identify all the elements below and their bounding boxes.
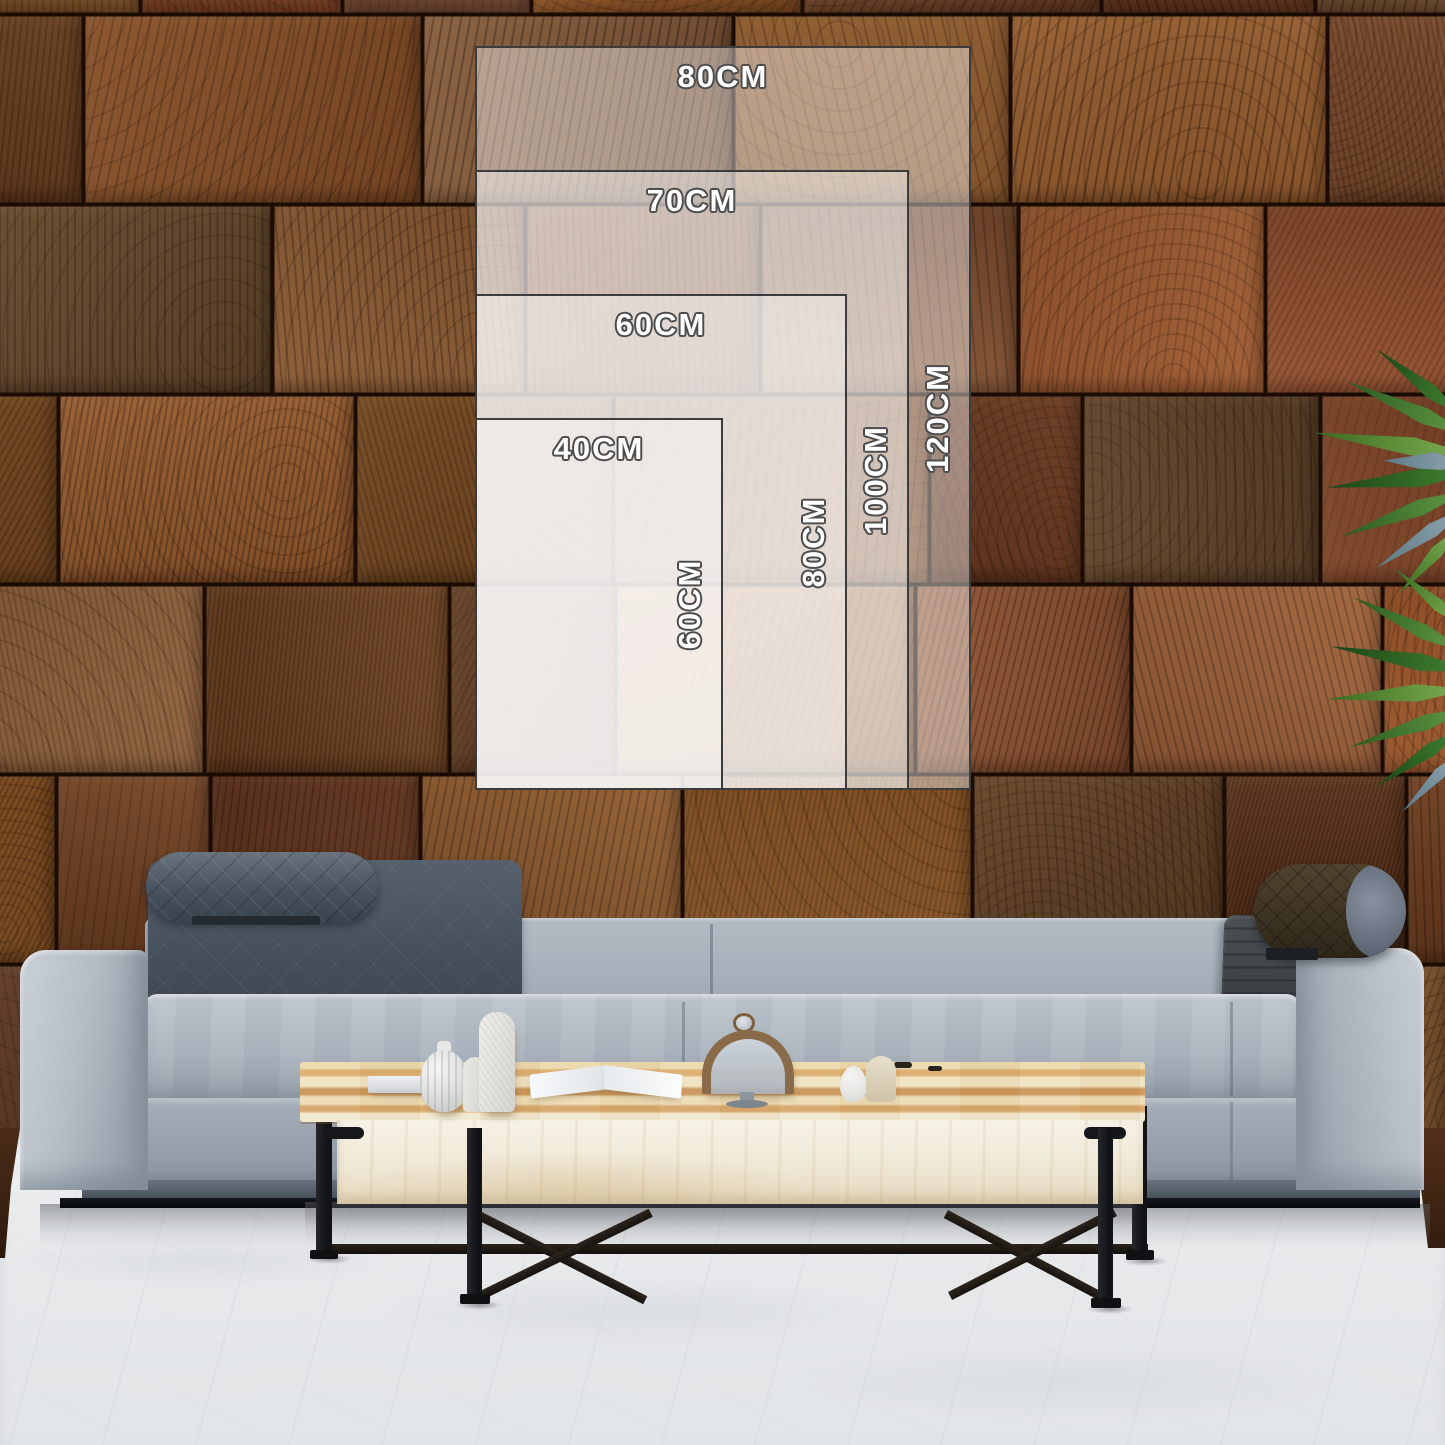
marble-vase-tall — [479, 1012, 515, 1112]
wood-block — [0, 16, 82, 203]
wood-block — [85, 16, 421, 203]
wood-block — [1384, 586, 1445, 773]
table-foot — [310, 1250, 338, 1259]
open-book — [528, 1062, 682, 1100]
headrest-roll-cushion — [146, 852, 378, 922]
sofa-armrest-left — [20, 950, 148, 1190]
table-foot — [1126, 1250, 1154, 1260]
table-cable-port — [894, 1062, 912, 1068]
wood-block — [1317, 0, 1445, 13]
bolster-end-cap — [1346, 864, 1406, 958]
headrest-bracket — [192, 916, 320, 925]
wood-block — [931, 396, 1082, 583]
wood-block — [1103, 0, 1314, 13]
wood-block — [0, 396, 57, 583]
bolster-bracket — [1266, 948, 1318, 960]
bell-cloche-foot — [726, 1100, 768, 1108]
wood-block — [0, 0, 139, 13]
table-front-face — [337, 1120, 1143, 1204]
open-book-left-page — [530, 1065, 607, 1098]
wood-block — [615, 396, 928, 583]
wood-block — [1012, 16, 1326, 203]
wood-block — [735, 16, 1008, 203]
wood-block — [1020, 206, 1264, 393]
leather-bolster-pillow — [1254, 864, 1406, 958]
open-book-right-page — [604, 1065, 683, 1098]
dome-ornament — [866, 1056, 896, 1102]
wood-block — [527, 206, 759, 393]
table-leg-front-left — [467, 1128, 482, 1300]
wood-block — [0, 586, 203, 773]
egg-ornament — [840, 1066, 867, 1102]
wood-block — [142, 0, 341, 13]
wood-block — [617, 586, 914, 773]
living-room-size-guide-scene: 80CM120CM70CM100CM60CM80CM40CM60CM — [0, 0, 1445, 1445]
table-foot — [1091, 1298, 1121, 1308]
table-cable-port — [928, 1066, 942, 1071]
drawer-handle-left — [322, 1127, 364, 1139]
wood-block — [357, 396, 612, 583]
wood-block — [274, 206, 525, 393]
sofa-armrest-right — [1296, 948, 1424, 1190]
wood-block — [0, 776, 55, 963]
wood-block — [344, 0, 530, 13]
wood-block — [451, 586, 614, 773]
wood-block — [206, 586, 448, 773]
wood-block — [1133, 586, 1382, 773]
gourd-vase — [420, 1050, 468, 1112]
wood-block — [804, 0, 1100, 13]
seat-seam — [1230, 1002, 1233, 1096]
table-floor-shadow — [305, 1202, 1147, 1246]
table-foot — [460, 1294, 490, 1304]
wood-block — [1084, 396, 1319, 583]
wood-block — [762, 206, 1017, 393]
wood-block — [1322, 396, 1445, 583]
base-cushion-seam — [1230, 1102, 1233, 1180]
wood-block — [1408, 776, 1445, 963]
wood-block — [0, 206, 271, 393]
wood-block — [60, 396, 354, 583]
wood-block — [1329, 16, 1445, 203]
table-leg-front-right — [1098, 1128, 1113, 1306]
wood-block — [917, 586, 1129, 773]
wood-block — [533, 0, 801, 13]
wood-block — [424, 16, 732, 203]
wood-block — [1267, 206, 1445, 393]
